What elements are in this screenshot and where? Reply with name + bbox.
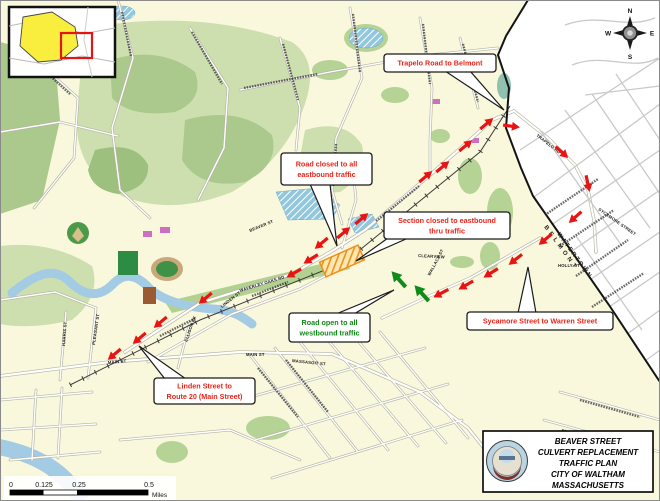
callout-text: Road closed to all [296, 159, 358, 168]
map-canvas: BEAVER STWAVERLEY OAKS RDMAIN STMAIN STM… [0, 0, 660, 501]
callout-text: thru traffic [429, 226, 465, 235]
callout-text: Road open to all [302, 318, 358, 327]
compass-w-label: W [605, 30, 612, 37]
scale-unit-label: Miles [152, 492, 168, 499]
compass-s-label: S [628, 54, 633, 61]
callout-text: Sycamore Street to Warren Street [483, 317, 598, 326]
title-line-5: MASSACHUSETTS [552, 481, 625, 490]
scale-tick-1: 0.125 [35, 482, 53, 489]
scale-tick-0: 0 [9, 482, 13, 489]
street-label: MAIN ST [246, 352, 265, 357]
title-line-1: BEAVER STREET [555, 437, 623, 446]
title-line-4: CITY OF WALTHAM [551, 470, 625, 479]
scale-tick-2: 0.25 [72, 482, 86, 489]
title-line-2: CULVERT REPLACEMENT [538, 448, 639, 457]
callout-text: westbound traffic [299, 328, 360, 337]
compass-n-label: N [628, 8, 633, 15]
compass-e-label: E [650, 30, 655, 37]
scale-bar: 0 0.125 0.25 0.5 Miles [4, 476, 176, 500]
callout-text: Route 20 (Main Street) [167, 392, 243, 401]
callout-text: Trapelo Road to Belmont [397, 59, 483, 68]
locator-inset-map [9, 7, 115, 77]
traffic-plan-map: BEAVER STWAVERLEY OAKS RDMAIN STMAIN STM… [0, 0, 660, 501]
scale-tick-3: 0.5 [144, 482, 154, 489]
waltham-city-seal [487, 441, 528, 482]
title-line-3: TRAFFIC PLAN [559, 459, 617, 468]
callout-text: Linden Street to [177, 381, 232, 390]
callout-text: eastbound traffic [297, 170, 355, 179]
title-block: BEAVER STREET CULVERT REPLACEMENT TRAFFI… [483, 431, 653, 492]
callout-text: Section closed to eastbound [398, 216, 496, 225]
